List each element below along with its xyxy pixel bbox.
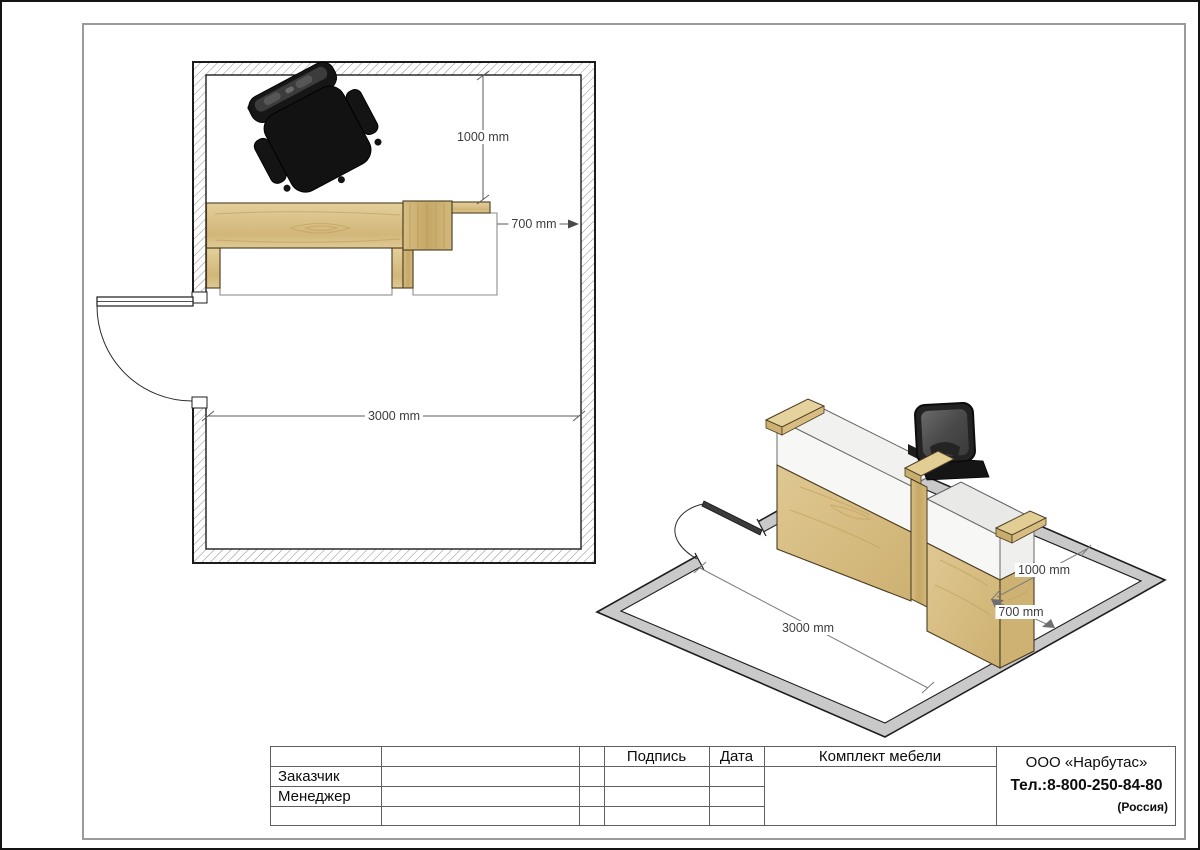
title-block: Заказчик Менеджер Подпись Дата Комплект … [270,746,1176,826]
customer-label: Заказчик [278,767,378,786]
company-phone: Тел.:8-800-250-84-80 [997,777,1176,795]
plan-desk-divider-panel2 [403,248,413,288]
company-name: ООО «Нарбутас» [997,754,1176,771]
plan-door-swing-arc [97,306,192,401]
plan-desk-divider-panel [392,248,403,288]
iso-door-leaf [702,501,762,535]
plan-door-opening [191,292,208,408]
signature-header: Подпись [604,747,709,766]
plan-wall-outer-edge [193,62,595,563]
iso-dim-1000mm: 1000 mm [1015,563,1073,577]
manager-label: Менеджер [278,787,378,806]
drawing-scene [0,0,1200,850]
plan-wall-band [193,62,595,563]
date-header: Дата [709,747,764,766]
plan-door-jamb-bottom [192,397,207,408]
plan-chair [233,52,394,212]
iso-door [675,501,766,570]
plan-door [97,292,208,408]
title-block-row-line [271,806,764,807]
title-block-row-line [271,766,996,767]
plan-door-jamb-top [192,292,207,303]
company-country: (Россия) [997,800,1176,814]
furniture-set-header: Комплект мебели [764,747,996,766]
plan-dim-3000mm: 3000 mm [365,409,423,423]
plan-desk [207,201,498,295]
plan-desk-side-panel-left [207,248,221,288]
floor-plan-view [97,52,595,563]
plan-dim-700mm: 700 mm [508,217,559,231]
iso-desk-divider-column [911,479,927,607]
iso-door-swing-arc [675,504,703,559]
plan-desk-worktop [220,248,392,295]
iso-dim-3000mm: 3000 mm [779,621,837,635]
plan-desk-end-strip [452,202,490,213]
isometric-view [597,399,1165,737]
plan-dim-1000mm: 1000 mm [454,130,512,144]
iso-dim-700mm: 700 mm [995,605,1046,619]
